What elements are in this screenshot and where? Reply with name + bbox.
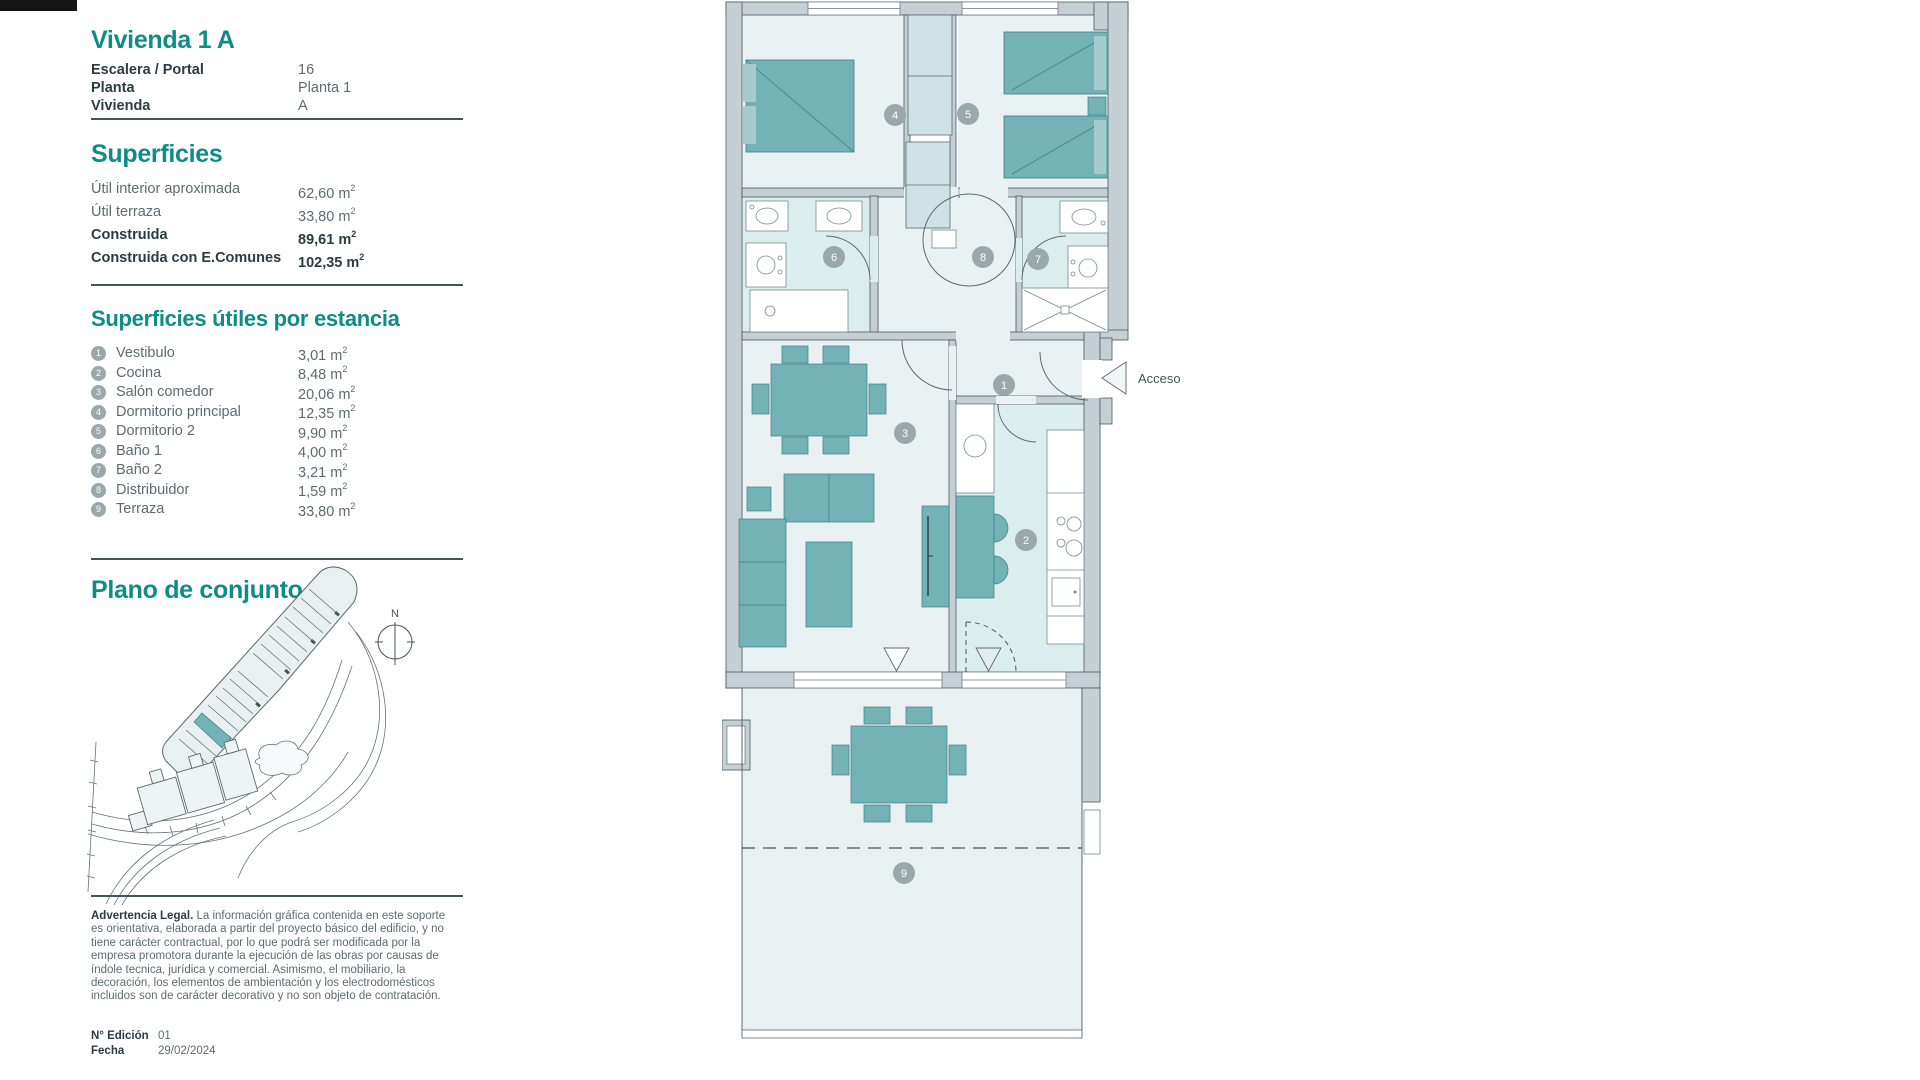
legal-title: Advertencia Legal. xyxy=(91,910,193,922)
site-plan: N xyxy=(86,560,470,905)
room-number-badge: 3 xyxy=(91,385,106,400)
room-number-badge: 7 xyxy=(91,463,106,478)
superficie-label: Útil terraza xyxy=(91,203,298,226)
superficie-label: Construida con E.Comunes xyxy=(91,249,298,272)
detail-row: Planta Planta 1 xyxy=(91,79,463,97)
superficies-rows: Útil interior aproximada 62,60 m2 Útil t… xyxy=(91,180,463,226)
floor-plan: Acceso 1 2 3 4 5 6 7 8 9 xyxy=(722,0,1222,1052)
room-number-badge: 4 xyxy=(91,405,106,420)
edition-label: Fecha xyxy=(91,1044,158,1059)
rooms-list: 1 Vestibulo 3,01 m2 2 Cocina 8,48 m2 3 S… xyxy=(91,344,463,520)
edition-value: 29/02/2024 xyxy=(158,1044,216,1059)
access-marker: Acceso xyxy=(1102,362,1181,394)
edition-row: N° Edición 01 xyxy=(91,1029,216,1044)
list-item: 2 Cocina 8,48 m2 xyxy=(91,364,463,384)
room-label: Vestibulo xyxy=(116,344,175,364)
bed-principal xyxy=(743,60,854,152)
superficie-value: 102,35 m2 xyxy=(298,249,364,272)
room-label: Dormitorio principal xyxy=(116,403,241,423)
page-title: Vivienda 1 A xyxy=(91,26,463,55)
site-building-strip xyxy=(163,567,358,780)
superficie-value: 33,80 m2 xyxy=(298,203,355,226)
edition-value: 01 xyxy=(158,1029,171,1044)
legal-disclaimer: Advertencia Legal. La información gráfic… xyxy=(91,910,453,1004)
room-label: Dormitorio 2 xyxy=(116,422,195,442)
detail-label: Planta xyxy=(91,79,298,97)
detail-row: Escalera / Portal 16 xyxy=(91,61,463,79)
room-label: Baño 2 xyxy=(116,461,162,481)
room-label: Cocina xyxy=(116,364,161,384)
superficie-row: Útil interior aproximada 62,60 m2 xyxy=(91,180,463,203)
superficies-rows-bold: Construida 89,61 m2 Construida con E.Com… xyxy=(91,226,463,272)
room-number-badge: 5 xyxy=(91,424,106,439)
detail-row: Vivienda A xyxy=(91,97,463,115)
list-item: 4 Dormitorio principal 12,35 m2 xyxy=(91,403,463,423)
list-item: 1 Vestibulo 3,01 m2 xyxy=(91,344,463,364)
room-number-badge: 9 xyxy=(91,502,106,517)
edition-label: N° Edición xyxy=(91,1029,158,1044)
superficie-label: Construida xyxy=(91,226,298,249)
svg-text:2: 2 xyxy=(1023,535,1029,547)
superficie-row: Construida 89,61 m2 xyxy=(91,226,463,249)
svg-text:4: 4 xyxy=(892,110,898,122)
edition-block: N° Edición 01 Fecha 29/02/2024 xyxy=(91,1029,216,1059)
list-item: 5 Dormitorio 2 9,90 m2 xyxy=(91,422,463,442)
detail-value: A xyxy=(298,97,308,115)
room-value: 33,80 m2 xyxy=(298,498,355,522)
list-item: 9 Terraza 33,80 m2 xyxy=(91,500,463,520)
room-label: Baño 1 xyxy=(116,442,162,462)
access-arrow-icon xyxy=(1102,362,1126,394)
print-crop-mark xyxy=(0,0,77,11)
list-item: 8 Distribuidor 1,59 m2 xyxy=(91,481,463,501)
compass-north-label: N xyxy=(391,608,399,620)
svg-text:5: 5 xyxy=(965,109,971,121)
svg-text:6: 6 xyxy=(831,252,837,264)
superficie-value: 62,60 m2 xyxy=(298,180,355,203)
room-number-badge: 8 xyxy=(91,483,106,498)
list-item: 7 Baño 2 3,21 m2 xyxy=(91,461,463,481)
room-label: Distribuidor xyxy=(116,481,189,501)
detail-value: 16 xyxy=(298,61,314,79)
divider xyxy=(91,895,463,897)
unit-details: Escalera / Portal 16 Planta Planta 1 Viv… xyxy=(91,61,463,115)
legal-body: La información gráfica contenida en este… xyxy=(91,910,445,1002)
detail-label: Vivienda xyxy=(91,97,298,115)
list-item: 6 Baño 1 4,00 m2 xyxy=(91,442,463,462)
svg-text:1: 1 xyxy=(1001,380,1007,392)
superficie-label: Útil interior aproximada xyxy=(91,180,298,203)
room-number-badge: 2 xyxy=(91,366,106,381)
svg-text:7: 7 xyxy=(1035,254,1041,266)
room-number-badge: 6 xyxy=(91,444,106,459)
superficie-row: Construida con E.Comunes 102,35 m2 xyxy=(91,249,463,272)
access-label: Acceso xyxy=(1138,371,1181,386)
rooms-heading: Superficies útiles por estancia xyxy=(91,306,463,332)
detail-label: Escalera / Portal xyxy=(91,61,298,79)
svg-text:3: 3 xyxy=(902,428,908,440)
distributor-cabinet xyxy=(932,230,956,248)
divider xyxy=(91,118,463,120)
superficies-heading: Superficies xyxy=(91,140,463,169)
wardrobe xyxy=(906,15,952,228)
room-number-badge: 1 xyxy=(91,346,106,361)
svg-text:9: 9 xyxy=(901,868,907,880)
superficie-row: Útil terraza 33,80 m2 xyxy=(91,203,463,226)
room-label: Terraza xyxy=(116,500,164,520)
room-label: Salón comedor xyxy=(116,383,214,403)
svg-text:8: 8 xyxy=(980,252,986,264)
compass-icon xyxy=(375,622,415,665)
divider xyxy=(91,284,463,286)
list-item: 3 Salón comedor 20,06 m2 xyxy=(91,383,463,403)
superficie-value: 89,61 m2 xyxy=(298,226,356,249)
detail-value: Planta 1 xyxy=(298,79,351,97)
edition-row: Fecha 29/02/2024 xyxy=(91,1044,216,1059)
